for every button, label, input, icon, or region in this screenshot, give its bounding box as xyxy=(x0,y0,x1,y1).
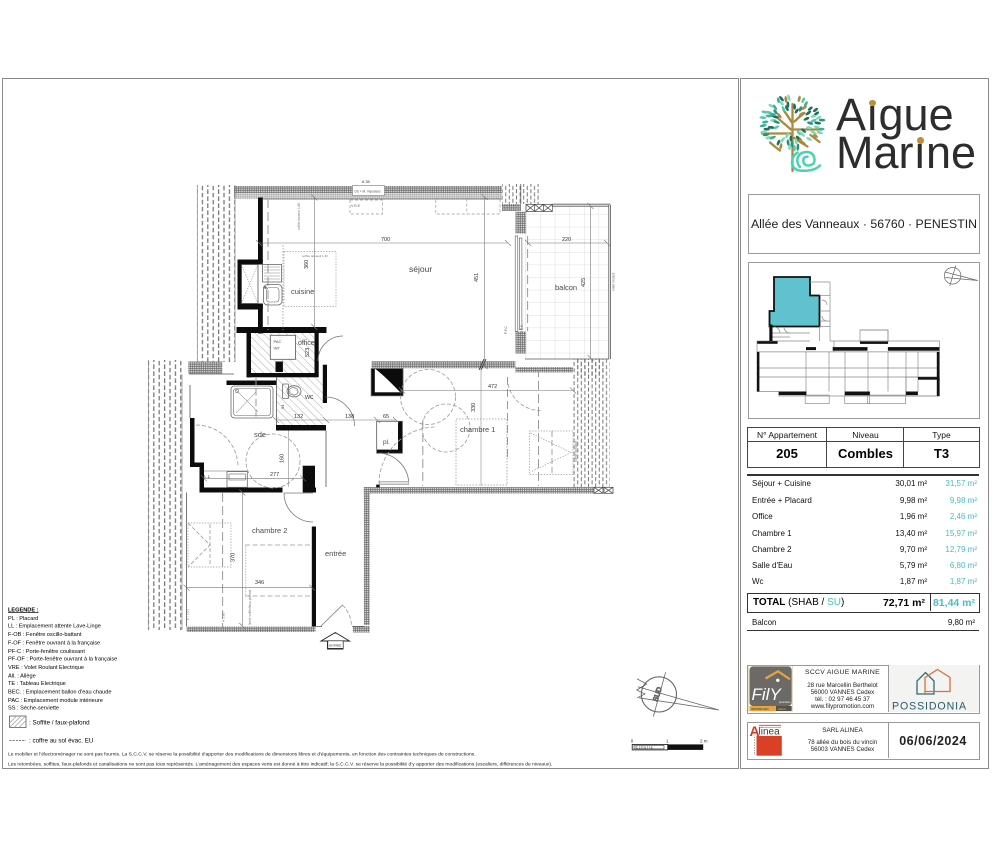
svg-text:2 m: 2 m xyxy=(700,739,708,744)
svg-text:promotion: promotion xyxy=(779,700,791,704)
svg-text:160: 160 xyxy=(280,454,286,463)
svg-text:soffite de seuil 1.30: soffite de seuil 1.30 xyxy=(302,254,328,258)
svg-text:pl.: pl. xyxy=(383,439,390,446)
svg-text:277: 277 xyxy=(270,472,279,478)
svg-text:linea: linea xyxy=(759,727,781,738)
svg-text:523: 523 xyxy=(305,348,311,357)
svg-text:balcon: balcon xyxy=(555,283,577,292)
svg-text:54: 54 xyxy=(280,404,285,409)
svg-text:soffite hauteur 1.80: soffite hauteur 1.80 xyxy=(297,203,301,230)
svg-text:370: 370 xyxy=(231,553,237,562)
svg-text:SUD: SUD xyxy=(653,686,664,702)
svg-text:472: 472 xyxy=(488,384,497,390)
svg-text:PAC: PAC xyxy=(274,339,282,344)
svg-text:entrée: entrée xyxy=(325,549,346,558)
svg-text:chambre 2: chambre 2 xyxy=(252,526,287,535)
svg-text:wc: wc xyxy=(304,394,314,401)
svg-text:sde: sde xyxy=(254,430,266,439)
svg-text:1: 1 xyxy=(666,739,669,744)
svg-text:INT: INT xyxy=(274,346,281,351)
svg-text:cuisine: cuisine xyxy=(291,287,314,296)
svg-text:L L: L L xyxy=(204,474,211,479)
svg-text:FilY: FilY xyxy=(752,685,783,704)
svg-text:V.R.E: V.R.E xyxy=(351,204,361,208)
svg-text:425: 425 xyxy=(581,278,587,287)
svg-text:Echelle: Echelle xyxy=(636,746,654,750)
svg-text:0: 0 xyxy=(631,739,634,744)
svg-text:POSSIDONIA: POSSIDONIA xyxy=(892,701,967,713)
svg-text:IMMOBILIER: IMMOBILIER xyxy=(751,707,770,711)
svg-text:NEUF: NEUF xyxy=(778,707,786,711)
svg-text:DS + M. imposées: DS + M. imposées xyxy=(355,190,382,194)
svg-text:V.R.E: V.R.E xyxy=(520,324,524,333)
svg-text:ENTREE: ENTREE xyxy=(329,643,341,647)
svg-text:office: office xyxy=(298,340,315,347)
svg-text:220: 220 xyxy=(562,237,571,243)
svg-text:6.35: 6.35 xyxy=(362,179,371,184)
svg-text:soffite rampant: soffite rampant xyxy=(574,441,578,462)
svg-text:volet roulant: volet roulant xyxy=(612,272,616,291)
svg-text:700: 700 xyxy=(381,237,390,243)
svg-text:limite soffite/faux-plafond: limite soffite/faux-plafond xyxy=(248,590,252,625)
svg-text:132: 132 xyxy=(294,414,303,420)
svg-text:ET (50): ET (50) xyxy=(186,609,190,620)
svg-text:65: 65 xyxy=(383,414,389,420)
svg-text:P.F.C: P.F.C xyxy=(504,326,508,334)
svg-text:138: 138 xyxy=(345,414,354,420)
svg-text:séjour: séjour xyxy=(409,264,432,274)
svg-text:346: 346 xyxy=(255,580,264,586)
svg-text:chambre 1: chambre 1 xyxy=(460,425,495,434)
svg-text:360: 360 xyxy=(304,260,310,269)
svg-text:H 1.80: H 1.80 xyxy=(222,612,226,622)
svg-text:330: 330 xyxy=(471,403,477,412)
svg-text:451: 451 xyxy=(474,273,480,282)
